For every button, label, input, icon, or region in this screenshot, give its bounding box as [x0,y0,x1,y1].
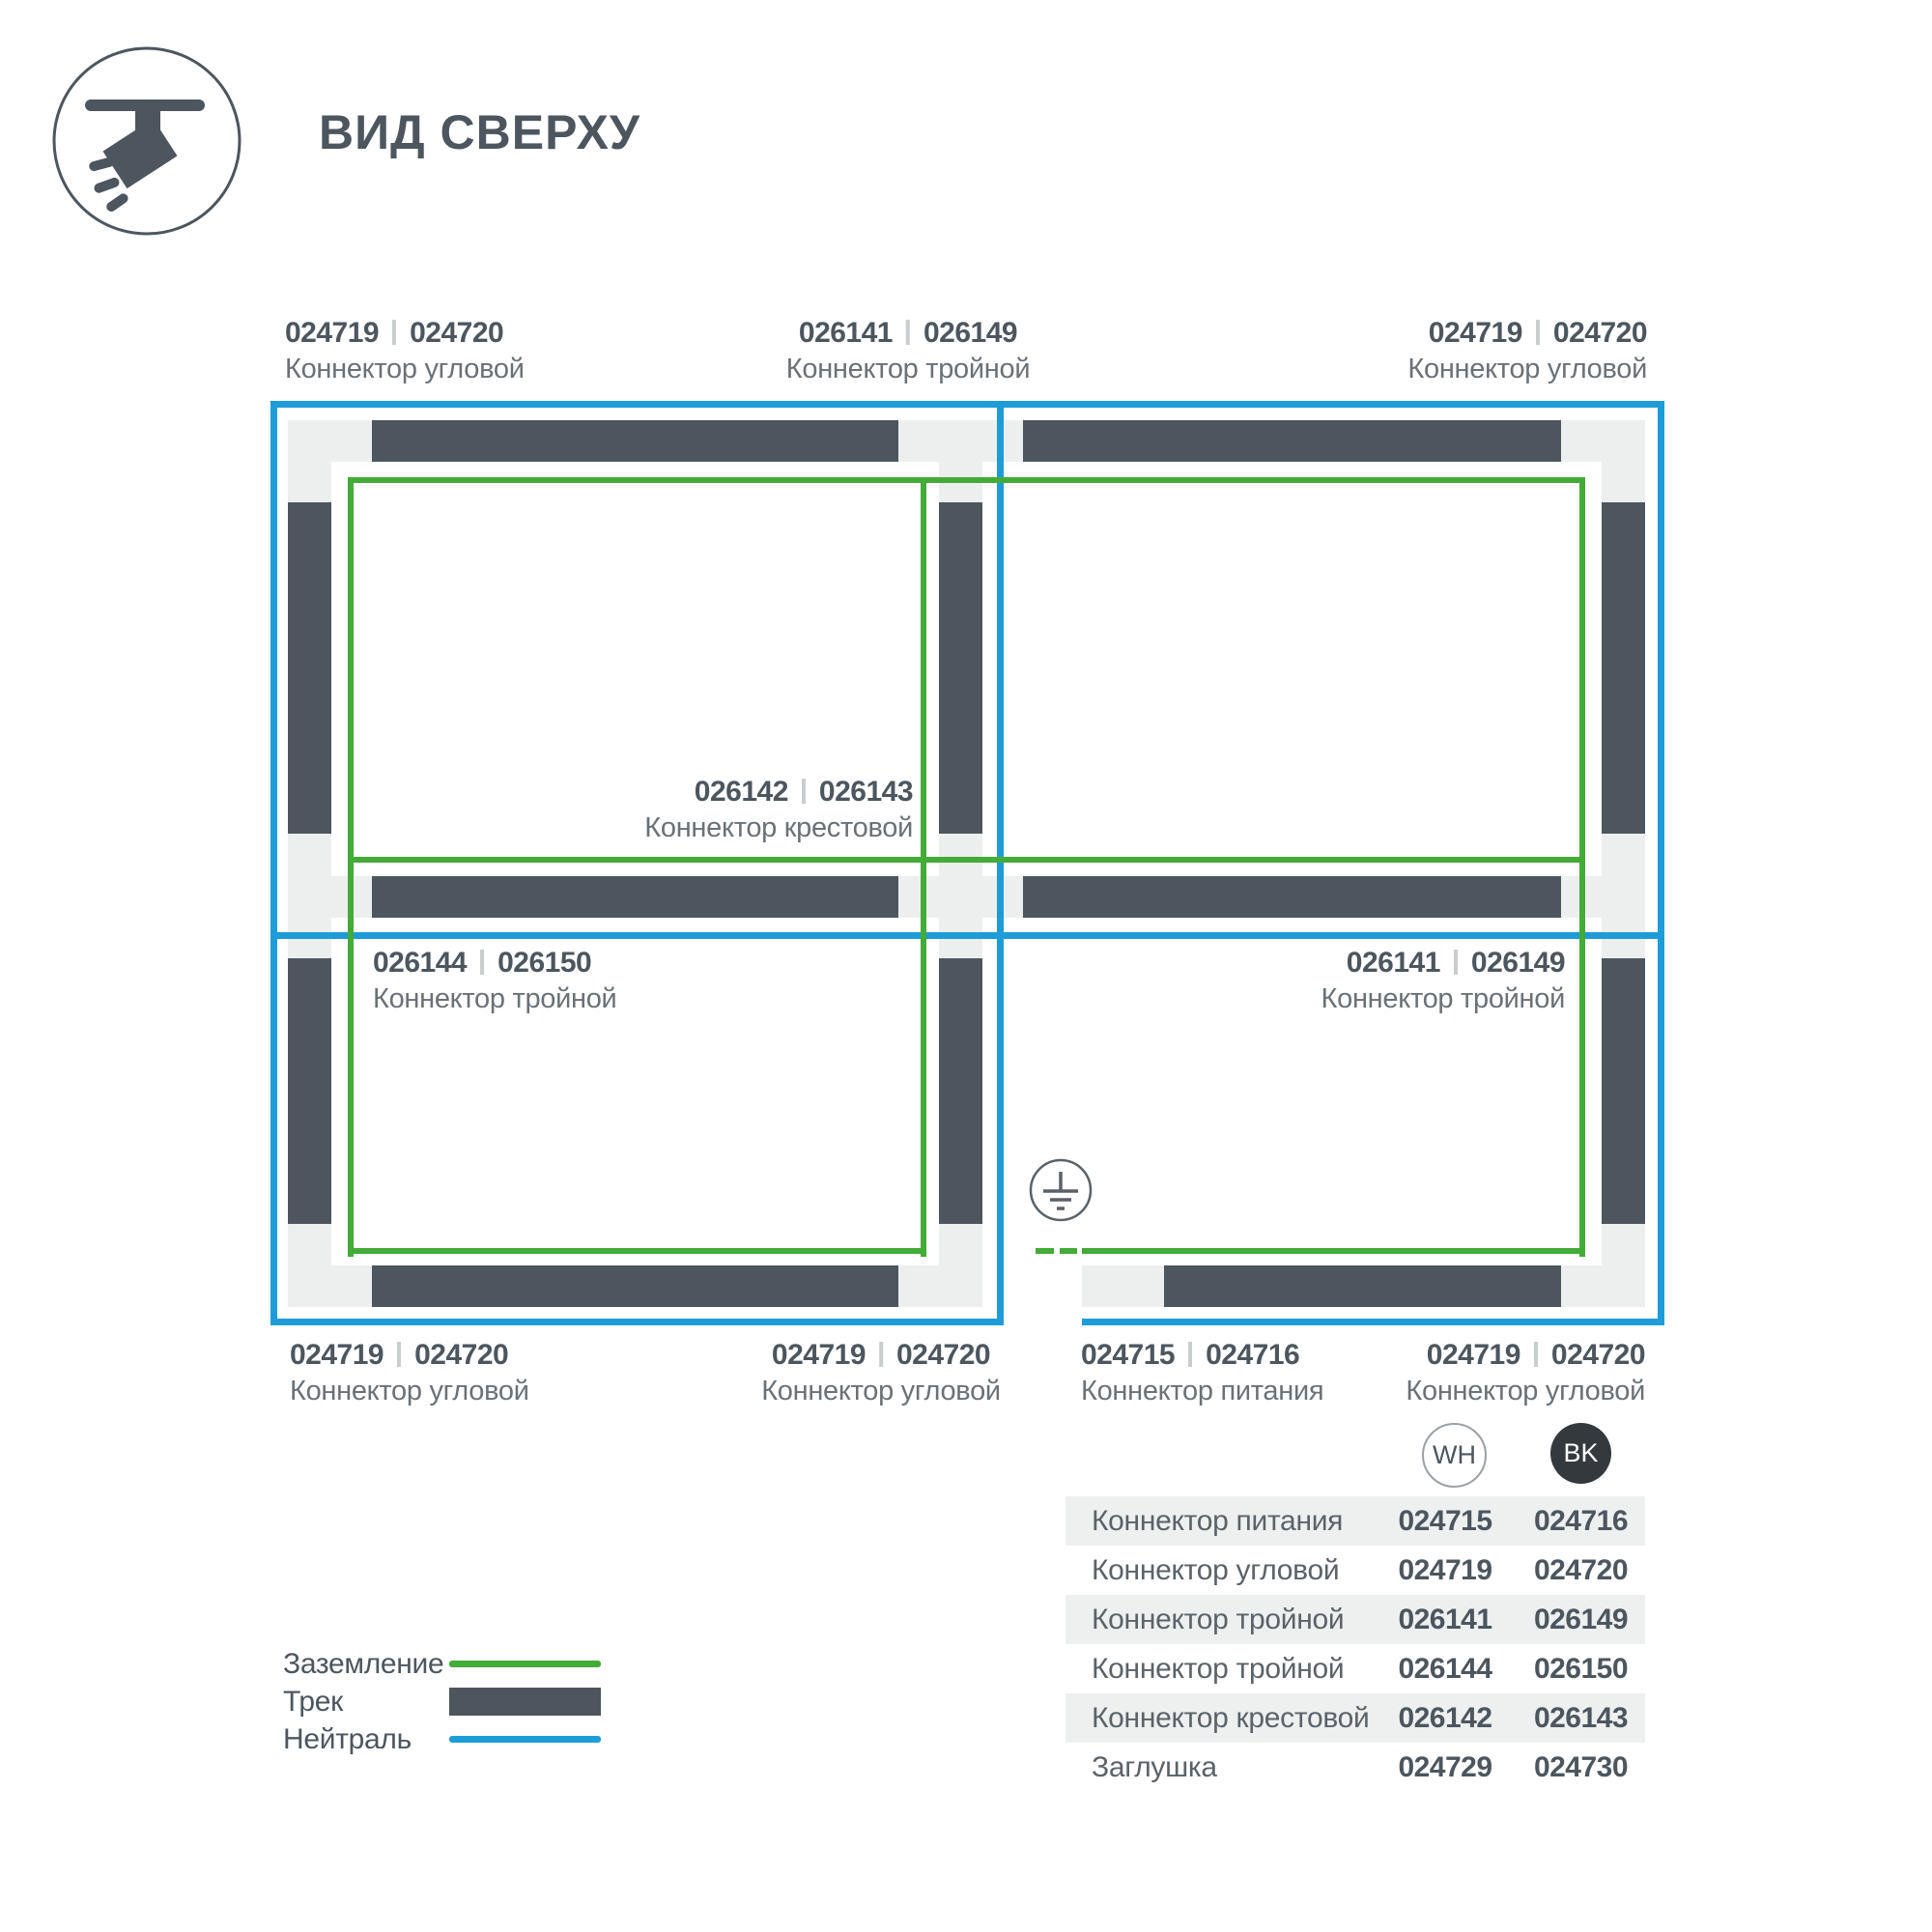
legend-label: Заземление [283,1648,449,1681]
connector-name: Коннектор тройной [1321,984,1565,1013]
table-row: Коннектор тройной 026144 026150 [1065,1644,1645,1693]
track-segment [1023,420,1561,462]
connector-label-top-left: 024719024720 Коннектор угловой [285,319,525,384]
track-segment [372,876,898,918]
row-wh-code: 024715 [1374,1505,1517,1538]
row-wh-code: 024719 [1374,1554,1517,1587]
table-row: Заглушка 024729 024730 [1065,1743,1645,1792]
color-badge-wh: WH [1422,1423,1487,1488]
separator [1536,320,1540,345]
connector-name: Коннектор угловой [1406,1377,1645,1406]
separator [1188,1342,1192,1367]
table-row: Коннектор питания 024715 024716 [1065,1496,1645,1546]
track-segment [939,958,982,1224]
ground-line-bottom-left [348,1248,926,1254]
connector-label-bottom-left: 024719024720 Коннектор угловой [290,1341,529,1406]
row-name: Коннектор тройной [1065,1653,1374,1686]
track-segment [1023,876,1561,918]
row-wh-code: 026142 [1374,1702,1517,1735]
table-row: Коннектор тройной 026141 026149 [1065,1595,1645,1644]
part-numbers: 024719024720 [285,319,525,348]
table-row: Коннектор угловой 024719 024720 [1065,1546,1645,1595]
connector-name: Коннектор тройной [373,984,616,1013]
row-bk-code: 024730 [1517,1751,1645,1784]
connector-label-bottom-middle: 024719024720 Коннектор угловой [761,1341,1001,1406]
neutral-line-left [270,401,277,1325]
row-wh-code: 026144 [1374,1653,1517,1686]
part-numbers: 024719024720 [1406,1341,1645,1370]
track-swatch [449,1688,601,1716]
connector-label-top-middle: 026141026149 Коннектор тройной [786,319,1030,384]
connector-label-bottom-right: 024719024720 Коннектор угловой [1406,1341,1645,1406]
ground-line-left [348,477,354,1257]
row-bk-code: 026149 [1517,1604,1645,1636]
separator [802,779,806,804]
ground-line-middle-vertical [921,477,926,1257]
color-badge-bk: BK [1550,1423,1611,1484]
connector-name: Коннектор угловой [290,1377,529,1406]
row-bk-code: 026150 [1517,1653,1645,1686]
legend-label: Нейтраль [283,1723,449,1756]
separator [480,950,484,975]
ground-line-dash [1036,1248,1054,1254]
separator [906,320,910,345]
row-name: Коннектор питания [1065,1505,1374,1538]
track-segment [372,420,898,462]
ground-line-top [348,477,1585,483]
connector-name: Коннектор тройной [786,355,1030,384]
legend-item-track: Трек [283,1683,601,1720]
part-numbers: 024715024716 [1081,1341,1323,1370]
track-spotlight-icon [50,43,243,237]
ground-line-dash [1060,1248,1077,1254]
neutral-line-middle-horizontal [270,932,1664,939]
row-name: Коннектор тройной [1065,1604,1374,1636]
row-bk-code: 026143 [1517,1702,1645,1735]
legend: Заземление Трек Нейтраль [283,1645,601,1758]
separator [397,1342,401,1367]
part-numbers: 024719024720 [761,1341,1001,1370]
track-segment [939,502,982,834]
track-segment [288,958,331,1224]
part-numbers: 024719024720 [1407,319,1647,348]
track-segment [1602,958,1645,1224]
part-numbers: 026141026149 [786,319,1030,348]
separator [392,320,396,345]
row-wh-code: 026141 [1374,1604,1517,1636]
part-numbers: 026144026150 [373,949,616,978]
connector-name: Коннектор угловой [761,1377,1001,1406]
track-segment [1602,502,1645,834]
page-title: ВИД СВЕРХУ [319,104,640,160]
row-bk-code: 024720 [1517,1554,1645,1587]
connector-label-bottom-power: 024715024716 Коннектор питания [1081,1341,1323,1406]
neutral-line-right [1658,401,1664,1325]
connector-label-mid-right: 026141026149 Коннектор тройной [1321,949,1565,1013]
track-segment [372,1265,898,1307]
track-segment [1164,1265,1561,1307]
legend-item-ground: Заземление [283,1645,601,1683]
row-bk-code: 024716 [1517,1505,1645,1538]
track-segment [288,502,331,834]
row-wh-code: 024729 [1374,1751,1517,1784]
separator [879,1342,883,1367]
connector-name: Коннектор питания [1081,1377,1323,1406]
connector-label-top-right: 024719024720 Коннектор угловой [1407,319,1647,384]
separator [1534,1342,1538,1367]
neutral-line-bottom-left [270,1319,1004,1325]
connector-name: Коннектор угловой [285,355,525,384]
neutral-line-bottom-right [1082,1319,1664,1325]
ground-line-swatch [449,1661,601,1667]
connector-label-mid-left: 026144026150 Коннектор тройной [373,949,616,1013]
connector-name: Коннектор угловой [1407,355,1647,384]
row-name: Коннектор крестовой [1065,1702,1374,1735]
part-numbers: 026141026149 [1321,949,1565,978]
table-row: Коннектор крестовой 026142 026143 [1065,1693,1645,1743]
ground-line-right [1579,477,1585,1257]
row-name: Коннектор угловой [1065,1554,1374,1587]
part-numbers: 024719024720 [290,1341,529,1370]
row-name: Заглушка [1065,1751,1374,1784]
legend-item-neutral: Нейтраль [283,1720,601,1758]
connector-label-center-cross: 026142026143 Коннектор крестовой [644,778,913,842]
ground-line-middle-horizontal [348,857,1585,863]
part-numbers: 026142026143 [644,778,913,807]
neutral-line-top [270,401,1664,408]
neutral-line-swatch [449,1736,601,1743]
earth-ground-icon [1028,1157,1094,1223]
ground-line-bottom-right [1082,1248,1585,1254]
neutral-line-middle-vertical [997,401,1004,1325]
connector-name: Коннектор крестовой [644,813,913,842]
separator [1454,950,1458,975]
legend-label: Трек [283,1686,449,1719]
